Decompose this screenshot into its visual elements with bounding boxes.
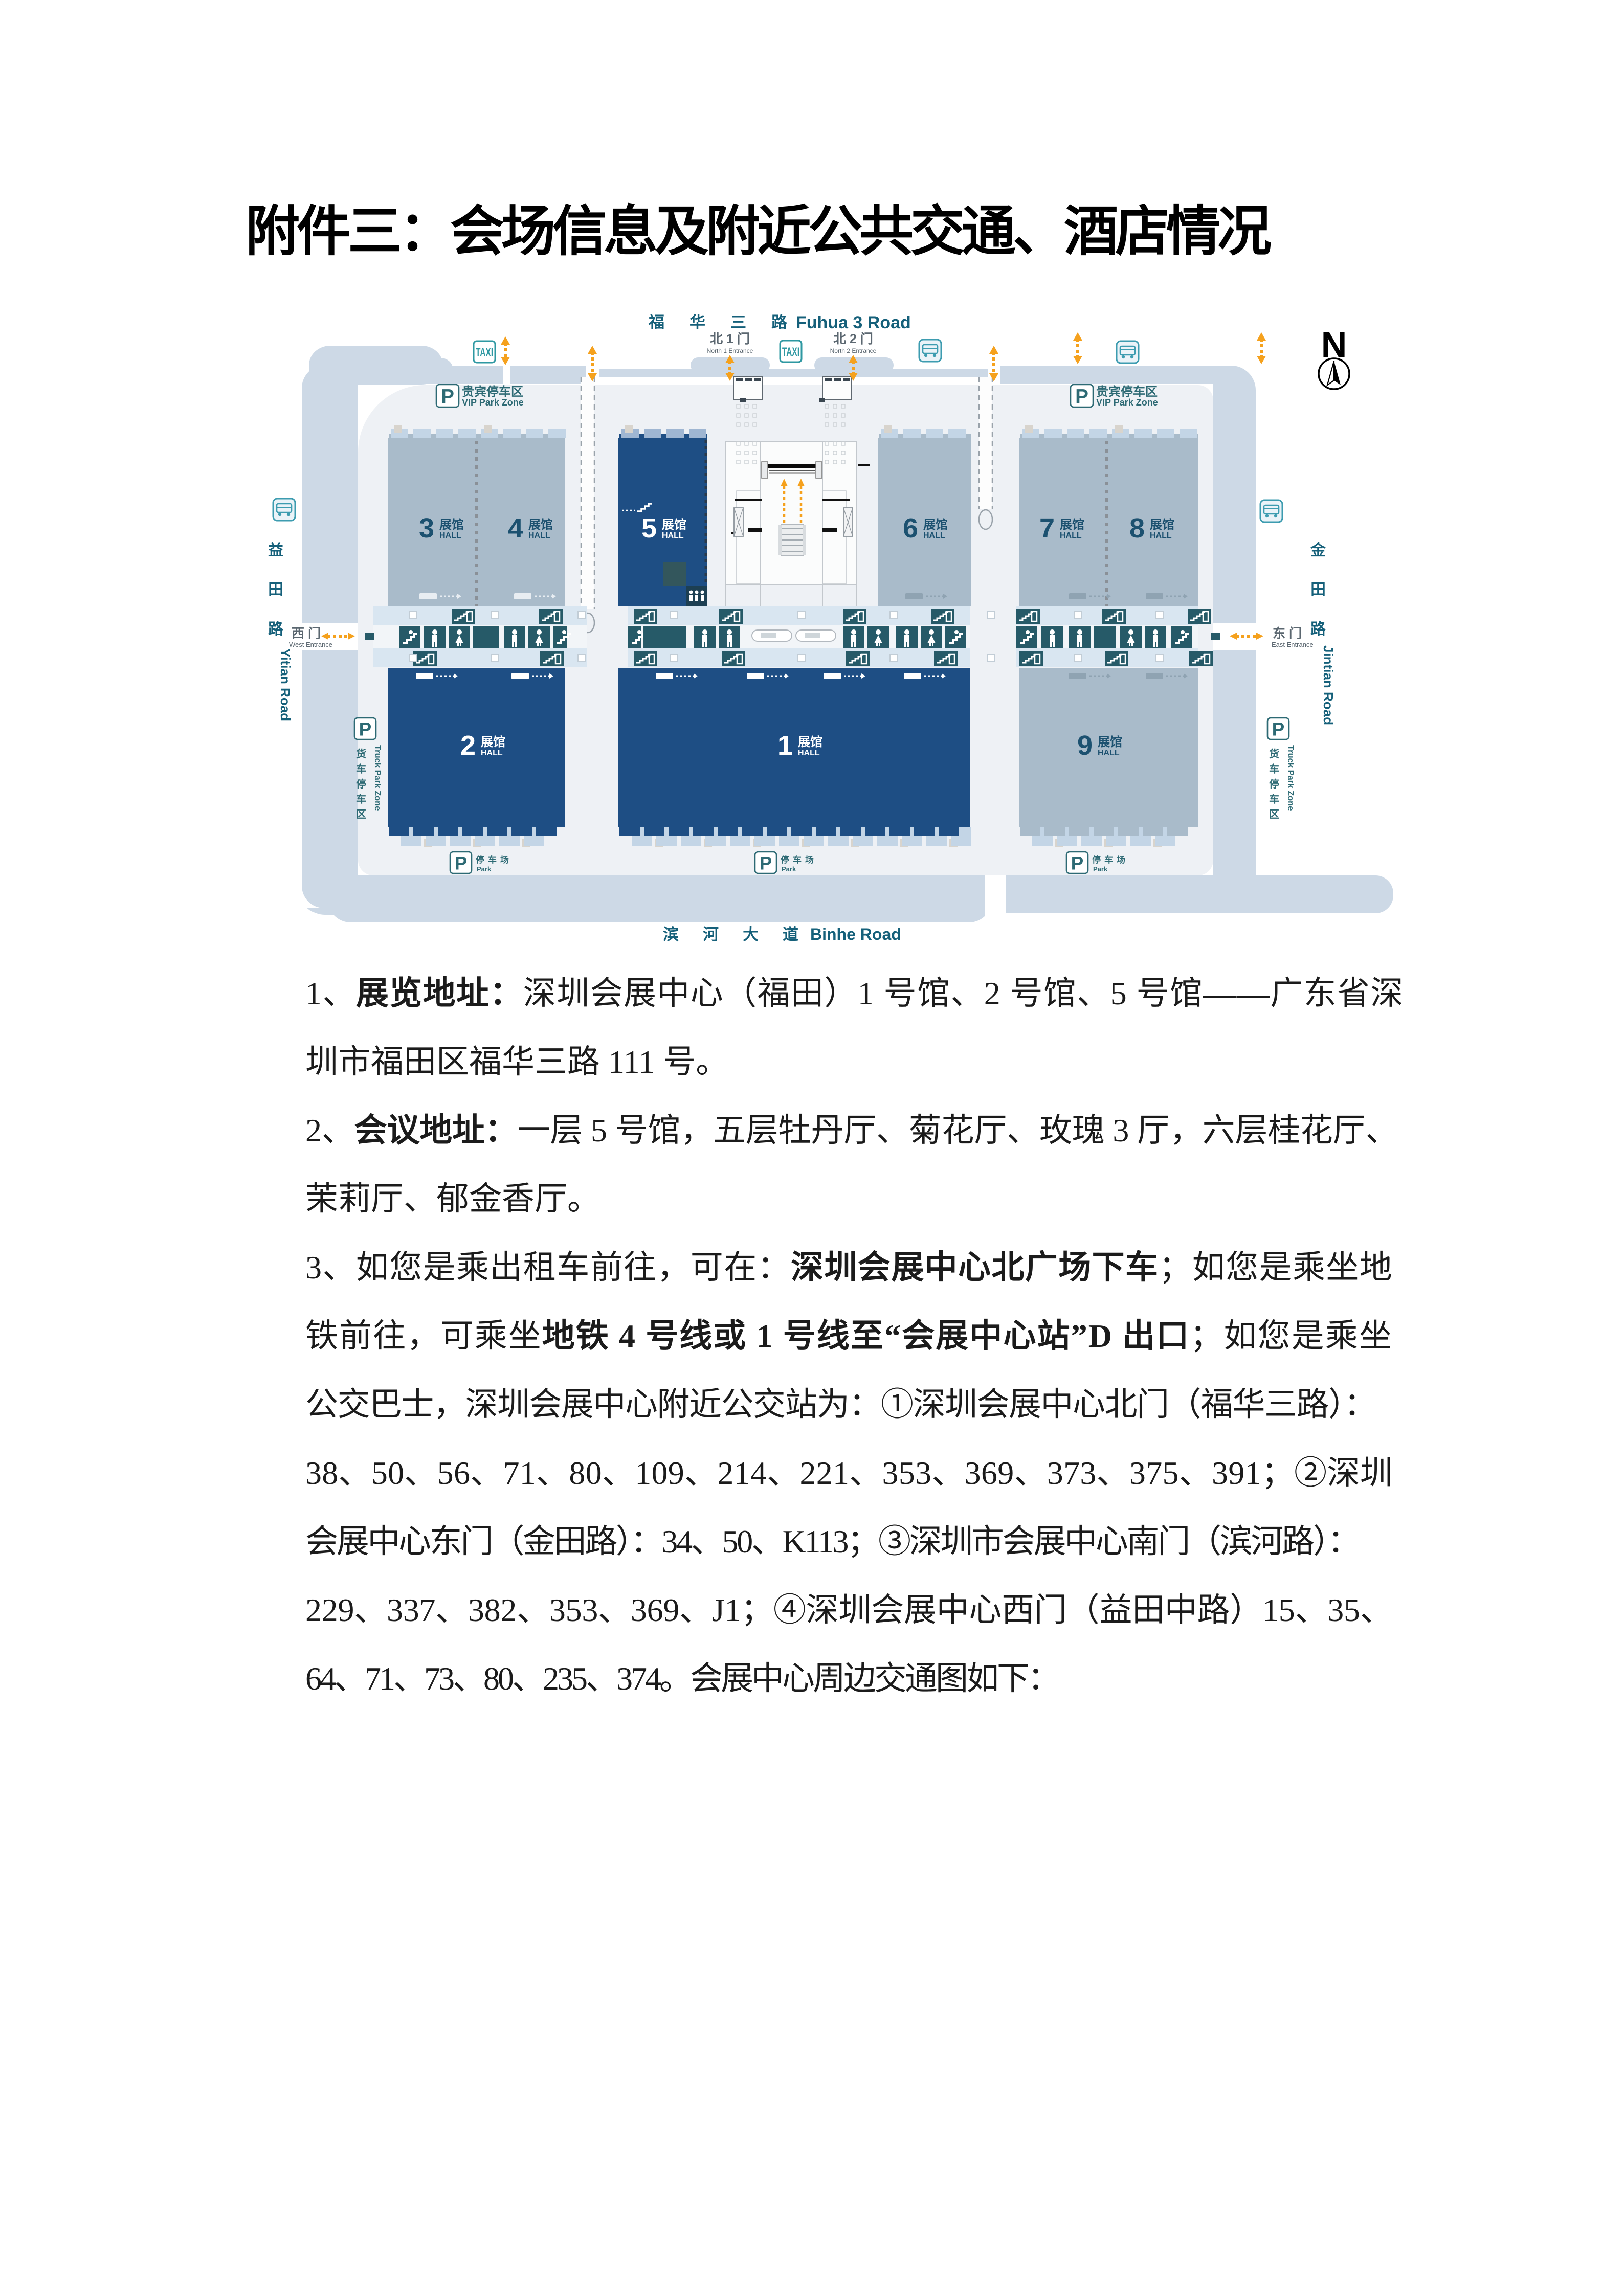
svg-text:1: 1 <box>777 730 793 761</box>
svg-text:展馆: 展馆 <box>1150 517 1174 532</box>
svg-text:道: 道 <box>783 926 798 943</box>
svg-text:停车场: 停车场 <box>1092 854 1129 865</box>
svg-text:金: 金 <box>1310 542 1326 559</box>
svg-text:区: 区 <box>356 809 366 820</box>
svg-text:4: 4 <box>508 513 523 544</box>
svg-text:P: P <box>1071 852 1084 873</box>
svg-text:3: 3 <box>419 513 434 544</box>
svg-text:Jintian Road: Jintian Road <box>1321 645 1336 725</box>
svg-text:车: 车 <box>1269 763 1279 775</box>
svg-text:Fuhua 3 Road: Fuhua 3 Road <box>796 313 911 332</box>
svg-text:HALL: HALL <box>1098 749 1120 757</box>
svg-text:HALL: HALL <box>798 749 820 757</box>
svg-text:展馆: 展馆 <box>662 517 686 532</box>
svg-text:P: P <box>760 852 772 873</box>
svg-text:VIP Park Zone: VIP Park Zone <box>462 397 524 408</box>
svg-text:停: 停 <box>1269 778 1279 790</box>
svg-text:Park: Park <box>477 865 492 873</box>
svg-text:West Entrance: West Entrance <box>289 641 332 648</box>
svg-text:区: 区 <box>1269 809 1279 820</box>
svg-text:HALL: HALL <box>1150 531 1172 540</box>
svg-text:货: 货 <box>356 748 366 760</box>
svg-text:路: 路 <box>1310 621 1326 638</box>
svg-text:HALL: HALL <box>662 531 684 540</box>
svg-text:8: 8 <box>1129 513 1145 544</box>
svg-text:益: 益 <box>268 542 283 559</box>
svg-text:VIP Park Zone: VIP Park Zone <box>1096 397 1158 408</box>
svg-text:P: P <box>455 852 468 873</box>
svg-text:展馆: 展馆 <box>923 517 948 532</box>
svg-text:展馆: 展馆 <box>798 735 822 749</box>
svg-text:贵宾停车区: 贵宾停车区 <box>462 385 523 399</box>
svg-text:停: 停 <box>356 778 366 790</box>
svg-text:路: 路 <box>268 621 284 638</box>
svg-text:9: 9 <box>1077 730 1093 761</box>
svg-text:HALL: HALL <box>528 531 550 540</box>
svg-text:HALL: HALL <box>439 531 461 540</box>
svg-text:贵宾停车区: 贵宾停车区 <box>1096 385 1158 399</box>
svg-text:货: 货 <box>1269 748 1279 760</box>
svg-text:TAXI: TAXI <box>782 345 799 359</box>
svg-text:车: 车 <box>356 793 366 805</box>
svg-text:河: 河 <box>703 926 719 943</box>
svg-text:车: 车 <box>1269 793 1279 805</box>
svg-text:展馆: 展馆 <box>1098 735 1122 749</box>
svg-text:停车场: 停车场 <box>781 854 817 865</box>
svg-text:北 2 门: 北 2 门 <box>833 331 873 346</box>
svg-text:Park: Park <box>1093 865 1108 873</box>
svg-text:展馆: 展馆 <box>1060 517 1084 532</box>
svg-text:Truck Park Zone: Truck Park Zone <box>373 745 382 811</box>
svg-text:北 1 门: 北 1 门 <box>710 331 750 346</box>
svg-text:HALL: HALL <box>481 749 503 757</box>
svg-text:路: 路 <box>771 313 788 331</box>
svg-text:Yitian Road: Yitian Road <box>278 648 293 721</box>
svg-text:TAXI: TAXI <box>476 346 493 359</box>
svg-text:福: 福 <box>648 313 664 331</box>
svg-text:HALL: HALL <box>923 531 945 540</box>
svg-text:展馆: 展馆 <box>481 735 505 749</box>
svg-text:西 门: 西 门 <box>292 626 321 641</box>
svg-text:Binhe Road: Binhe Road <box>810 925 901 943</box>
svg-text:Truck Park Zone: Truck Park Zone <box>1286 745 1295 811</box>
svg-text:P: P <box>441 386 454 408</box>
svg-text:7: 7 <box>1039 513 1055 544</box>
svg-text:5: 5 <box>641 513 657 544</box>
svg-text:North 2 Entrance: North 2 Entrance <box>830 347 877 354</box>
svg-text:P: P <box>359 718 372 739</box>
svg-text:大: 大 <box>743 926 759 943</box>
svg-text:2: 2 <box>460 730 476 761</box>
svg-text:North 1 Entrance: North 1 Entrance <box>707 347 753 354</box>
svg-text:展馆: 展馆 <box>528 517 553 532</box>
svg-text:田: 田 <box>1310 581 1326 598</box>
svg-text:6: 6 <box>903 513 918 544</box>
svg-text:华: 华 <box>689 313 705 331</box>
svg-text:P: P <box>1075 386 1088 408</box>
svg-text:Park: Park <box>782 865 796 873</box>
svg-text:停车场: 停车场 <box>476 854 513 865</box>
svg-text:East Entrance: East Entrance <box>1272 641 1314 648</box>
svg-text:车: 车 <box>356 763 366 775</box>
svg-text:东 门: 东 门 <box>1273 626 1302 641</box>
svg-text:三: 三 <box>730 313 746 331</box>
svg-text:HALL: HALL <box>1060 531 1082 540</box>
svg-text:P: P <box>1272 718 1285 739</box>
svg-text:展馆: 展馆 <box>439 517 464 532</box>
svg-text:滨: 滨 <box>663 926 679 943</box>
svg-text:田: 田 <box>268 581 283 598</box>
